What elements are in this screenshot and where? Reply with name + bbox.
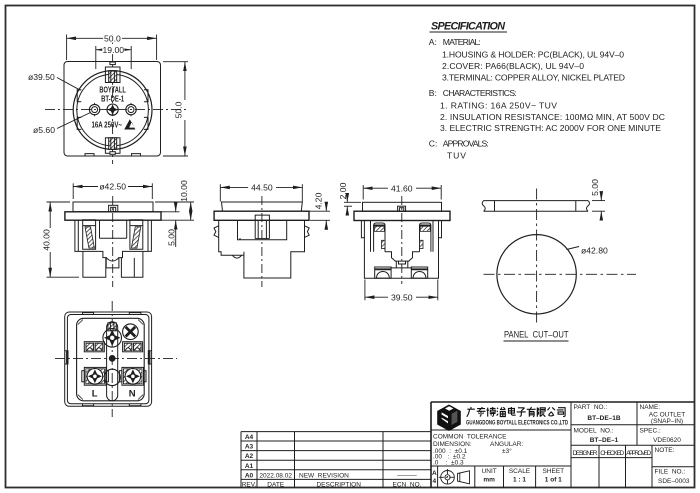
svg-text:NOTE:: NOTE:: [655, 447, 675, 454]
svg-text:DESIGNER: DESIGNER: [573, 450, 598, 457]
svg-text:PANEL CUT–OUT: PANEL CUT–OUT: [504, 330, 569, 340]
svg-text:CHECKED: CHECKED: [600, 450, 624, 457]
svg-text:BT–DE–1: BT–DE–1: [590, 437, 619, 444]
svg-text:TUV: TUV: [447, 151, 466, 161]
svg-text:SCALE: SCALE: [509, 468, 531, 475]
svg-text:50.0: 50.0: [104, 33, 121, 43]
svg-text:mm: mm: [483, 476, 495, 483]
svg-text:2.00: 2.00: [338, 182, 348, 199]
svg-text:A2: A2: [245, 453, 254, 460]
svg-text:PART NO.:: PART NO.:: [574, 404, 608, 411]
svg-text:A1: A1: [245, 463, 254, 470]
svg-text:4.20: 4.20: [314, 192, 324, 209]
svg-text:3.TERMINAL: COPPER ALLOY, NICK: 3.TERMINAL: COPPER ALLOY, NICKEL PLATED: [442, 73, 625, 83]
svg-text:1 of 1: 1 of 1: [545, 476, 562, 483]
svg-text:ECN NO.: ECN NO.: [393, 481, 422, 488]
svg-text:COMMON TOLERANCE: COMMON TOLERANCE: [433, 433, 507, 440]
svg-text:MODEL NO.:: MODEL NO.:: [574, 428, 614, 435]
svg-text:44.50: 44.50: [251, 183, 273, 193]
svg-text:ø42.50: ø42.50: [99, 182, 126, 192]
svg-text:(SNAP–IN): (SNAP–IN): [651, 418, 683, 425]
svg-text:A0: A0: [245, 472, 254, 479]
svg-text:CHARACTERISTICS:: CHARACTERISTICS:: [443, 88, 517, 98]
svg-text:UNIT: UNIT: [482, 468, 497, 475]
svg-text:C:: C:: [429, 139, 438, 149]
svg-text:BT–DE–1B: BT–DE–1B: [587, 415, 621, 422]
svg-text:16A 250V~: 16A 250V~: [92, 121, 123, 130]
svg-text:SHEET: SHEET: [542, 468, 564, 475]
svg-text:A:: A:: [429, 37, 437, 47]
svg-text:SPEC.:: SPEC.:: [640, 428, 662, 435]
svg-text:VDE0620: VDE0620: [653, 437, 681, 444]
svg-text:SPECIFICATION: SPECIFICATION: [431, 21, 505, 33]
svg-text:B:: B:: [429, 88, 437, 98]
svg-text:4: 4: [432, 478, 436, 485]
svg-text:N: N: [129, 389, 136, 400]
svg-text:ø39.50: ø39.50: [28, 72, 55, 82]
svg-text:.0 : ±0.3: .0 : ±0.3: [433, 459, 464, 466]
svg-text:SDE–0003: SDE–0003: [658, 478, 690, 485]
svg-text:A4: A4: [245, 434, 254, 441]
svg-text:3. ELECTRIC STRENGTH: AC 2000V: 3. ELECTRIC STRENGTH: AC 2000V FOR ONE M…: [440, 123, 661, 133]
svg-text:ø42.80: ø42.80: [581, 246, 608, 256]
svg-text:1.HOUSING & HOLDER: PC(BLACK),: 1.HOUSING & HOLDER: PC(BLACK), UL 94V–0: [442, 50, 624, 60]
svg-text:A: A: [432, 470, 437, 477]
svg-text:±3°: ±3°: [502, 447, 512, 455]
svg-text:BT-DE-1: BT-DE-1: [101, 94, 124, 103]
svg-text:GUANGDONG BOYTALL ELECTRONICS: GUANGDONG BOYTALL ELECTRONICS CO.,LTD: [466, 420, 568, 427]
svg-text:NAME:: NAME:: [640, 404, 661, 411]
svg-text:40.00: 40.00: [42, 229, 52, 251]
svg-text:APPROVED: APPROVED: [626, 450, 651, 457]
svg-text:NEW REVISION: NEW REVISION: [299, 472, 349, 479]
svg-text:DESCRIPTION: DESCRIPTION: [316, 481, 361, 488]
svg-text:5.00: 5.00: [167, 229, 177, 246]
svg-text:19.00: 19.00: [103, 45, 125, 55]
svg-text:1. RATING: 16A 250V~ TUV: 1. RATING: 16A 250V~ TUV: [440, 101, 557, 111]
svg-text:2. INSULATION RESISTANCE: 100M: 2. INSULATION RESISTANCE: 100MΩ MIN, AT …: [440, 112, 665, 122]
svg-text:50.0: 50.0: [174, 101, 184, 118]
svg-text:BOYTALL: BOYTALL: [99, 85, 126, 94]
svg-text:2022.08.02: 2022.08.02: [259, 472, 292, 479]
svg-text:10.00: 10.00: [179, 180, 189, 202]
svg-text:REV.: REV.: [242, 481, 257, 488]
svg-text:FILE NO.:: FILE NO.:: [655, 469, 686, 476]
svg-text:ø5.60: ø5.60: [33, 125, 55, 135]
svg-text:APPROVALS:: APPROVALS:: [443, 139, 489, 149]
svg-text:MATERIAL:: MATERIAL:: [443, 37, 481, 47]
svg-text:41.60: 41.60: [391, 183, 413, 193]
svg-text:DATE: DATE: [267, 481, 285, 488]
svg-text:A3: A3: [245, 444, 254, 451]
svg-text:5.00: 5.00: [590, 179, 600, 196]
svg-text:L: L: [92, 389, 98, 400]
svg-text:2.COVER: PA66(BLACK), UL 94V–0: 2.COVER: PA66(BLACK), UL 94V–0: [442, 61, 584, 71]
svg-text:39.50: 39.50: [391, 292, 413, 302]
svg-text:———: ———: [397, 472, 417, 479]
svg-text:1 : 1: 1 : 1: [513, 476, 526, 483]
